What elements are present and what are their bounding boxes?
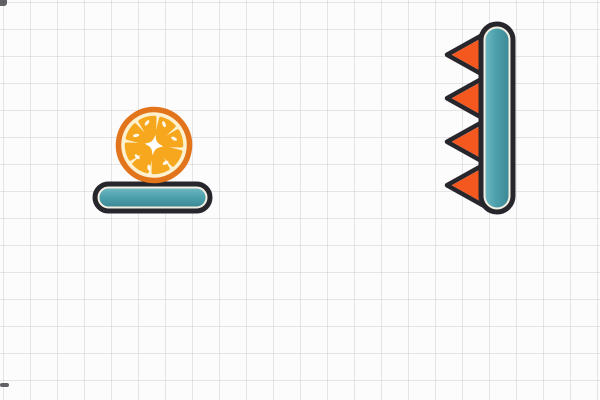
game-area[interactable] [0, 0, 600, 400]
platform-fill [100, 189, 206, 207]
scene-canvas [0, 0, 600, 400]
platform[interactable] [95, 184, 210, 211]
orange-fruit[interactable] [114, 105, 194, 185]
bar-fill [486, 29, 509, 208]
spiked-bar[interactable] [447, 24, 513, 212]
